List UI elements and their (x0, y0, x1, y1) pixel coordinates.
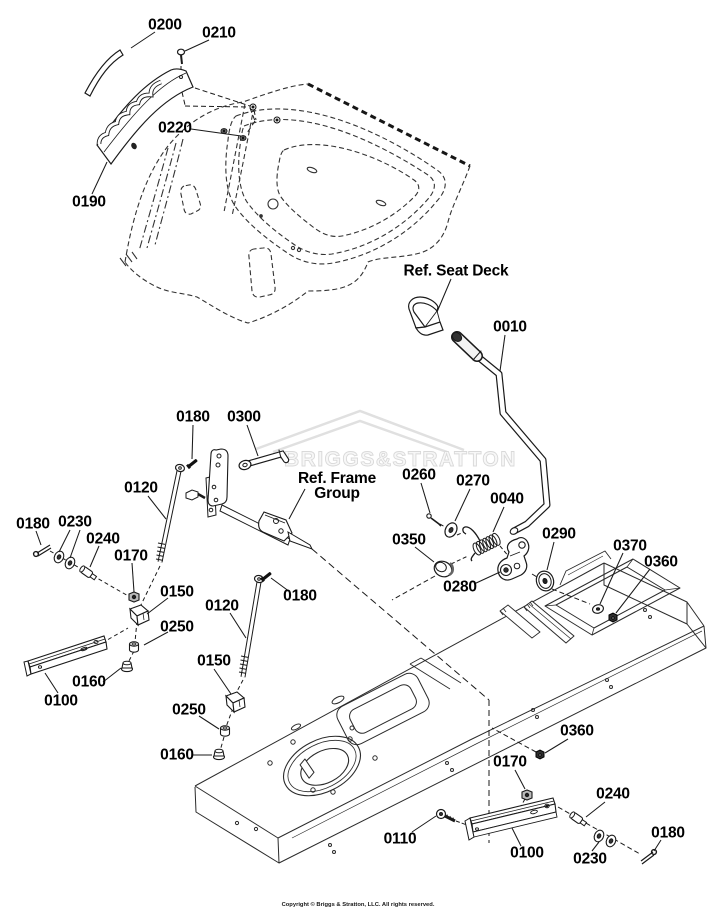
leader-line (600, 553, 623, 604)
leader-line (148, 496, 166, 519)
leader-line (474, 572, 500, 584)
handle-0300 (238, 450, 286, 471)
washer-0270 (443, 521, 460, 539)
leader-line (45, 673, 58, 693)
bracket-0190 (97, 69, 193, 164)
washers-0230-left (52, 550, 76, 571)
washer-0370 (592, 604, 605, 615)
bolt-0110 (437, 810, 456, 822)
parts-diagram: BRIGGS&STRATTON (0, 0, 718, 913)
cotter-pin-0180-right (641, 850, 656, 864)
leader-line (500, 335, 505, 371)
watermark-text: BRIGGS&STRATTON (284, 448, 517, 471)
leader-line (90, 546, 99, 567)
seat-deck-outline (120, 84, 470, 323)
leader-line (214, 669, 231, 694)
spacer-0240-right (569, 811, 588, 827)
leader-line (289, 489, 305, 519)
leader-line (59, 530, 70, 552)
bushing-0250-lower (221, 726, 230, 736)
leader-line (512, 828, 521, 846)
pin-0180-upper (186, 458, 198, 469)
leader-line (547, 542, 554, 570)
copyright-text: Copyright © Briggs & Stratton, LLC. All … (282, 902, 435, 908)
leader-line (132, 563, 134, 592)
leader-line (437, 279, 451, 312)
leader-line (199, 716, 219, 729)
leader-line (515, 770, 525, 789)
leader-line (144, 632, 168, 645)
screw-0210 (178, 49, 185, 64)
leader-line (271, 578, 290, 592)
leader-line (586, 802, 605, 817)
nut-0160-upper (122, 661, 133, 671)
clamp-0150-lower (226, 692, 245, 712)
leader-line (185, 40, 209, 51)
diagram-art: BRIGGS&STRATTON (0, 0, 718, 913)
leader-line (103, 668, 121, 682)
bushing-0250-upper (130, 642, 139, 652)
nut-0360-lower (536, 750, 544, 759)
frame (195, 551, 706, 863)
leader-line (421, 483, 430, 513)
leader-line (191, 129, 241, 136)
leader-line (70, 530, 80, 558)
leader-line (545, 739, 568, 753)
leader-lines (36, 32, 661, 851)
spring-0040 (463, 527, 502, 561)
leader-line (415, 547, 434, 562)
leader-line (247, 425, 258, 456)
leader-line (592, 842, 599, 851)
lever-0010 (451, 331, 547, 536)
bar-0100-right (465, 798, 557, 840)
leader-line (192, 425, 193, 459)
rod-0120-lower (239, 574, 264, 677)
cotter-pin-0180-left (34, 545, 51, 556)
clamp-0150-upper (130, 605, 149, 625)
rod-0120-upper (156, 463, 185, 562)
pin-0260 (427, 514, 441, 526)
seat-latch (409, 297, 443, 335)
leader-line (92, 162, 107, 194)
nut-0170-left (129, 592, 139, 602)
hood-strip-0200 (85, 50, 123, 96)
leader-line (147, 598, 168, 614)
leader-line (36, 531, 41, 545)
briggs-stratton-watermark: BRIGGS&STRATTON (256, 411, 517, 471)
bracket-0280 (498, 538, 529, 580)
nut-0360-upper (609, 613, 617, 622)
leader-line (654, 840, 661, 851)
leader-line (455, 489, 470, 521)
nut-0160-lower (214, 749, 225, 759)
leader-line (230, 613, 246, 638)
leader-line (493, 507, 504, 532)
spacer-0240-left (79, 565, 98, 581)
bar-0100-left (24, 636, 107, 676)
leader-line (131, 32, 155, 48)
leader-line (412, 816, 436, 832)
nut-0170-lower (522, 790, 532, 800)
